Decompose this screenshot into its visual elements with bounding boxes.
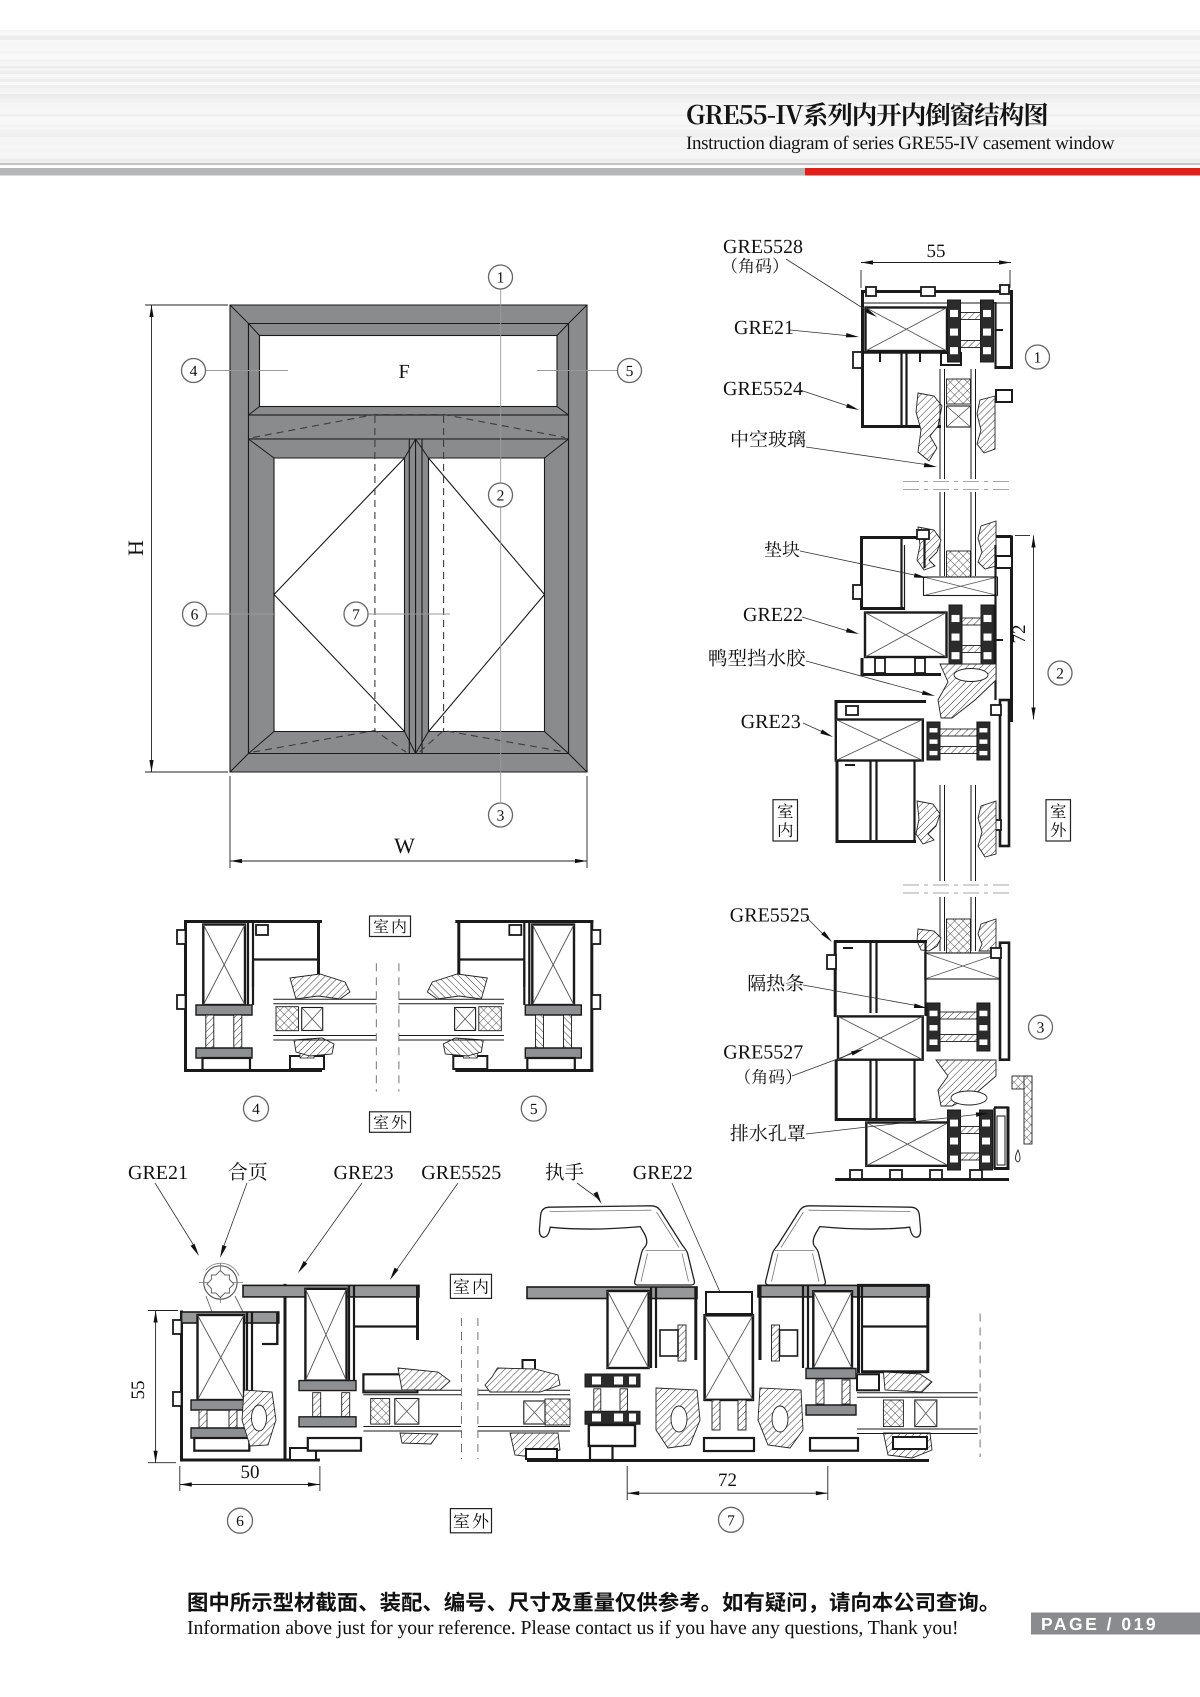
svg-text:F: F: [398, 361, 409, 383]
svg-text:6: 6: [236, 1513, 244, 1530]
svg-text:GRE5527: GRE5527: [723, 1042, 803, 1064]
svg-text:5: 5: [530, 1101, 538, 1118]
svg-text:1: 1: [1034, 350, 1042, 367]
svg-text:7: 7: [352, 607, 360, 624]
svg-text:55: 55: [927, 241, 946, 262]
svg-text:72: 72: [1009, 625, 1030, 644]
svg-text:2: 2: [1056, 666, 1064, 683]
svg-text:1: 1: [497, 270, 505, 287]
svg-text:GRE23: GRE23: [741, 711, 801, 733]
svg-text:4: 4: [252, 1101, 260, 1118]
svg-text:Instruction diagram of series: Instruction diagram of series GRE55-IV c…: [686, 133, 1115, 154]
svg-text:2: 2: [497, 488, 505, 505]
svg-text:55: 55: [128, 1381, 149, 1400]
svg-text:W: W: [394, 833, 415, 858]
svg-text:72: 72: [718, 1470, 737, 1491]
svg-text:50: 50: [241, 1462, 260, 1483]
svg-text:Information above just for you: Information above just for your referenc…: [187, 1617, 959, 1639]
svg-text:H: H: [123, 540, 148, 556]
svg-text:3: 3: [1037, 1020, 1045, 1037]
svg-text:GRE22: GRE22: [633, 1162, 693, 1184]
svg-text:5: 5: [626, 363, 634, 380]
svg-text:PAGE / 019: PAGE / 019: [1041, 1614, 1158, 1634]
svg-text:GRE23: GRE23: [334, 1162, 394, 1184]
svg-text:GRE5525: GRE5525: [421, 1162, 501, 1184]
svg-text:GRE21: GRE21: [128, 1162, 188, 1184]
svg-text:7: 7: [727, 1512, 735, 1529]
svg-text:GRE5528: GRE5528: [723, 236, 803, 258]
svg-text:4: 4: [190, 363, 198, 380]
svg-text:GRE5525: GRE5525: [730, 905, 810, 927]
svg-text:GRE22: GRE22: [743, 604, 803, 626]
svg-text:6: 6: [191, 607, 199, 624]
svg-text:3: 3: [497, 808, 505, 825]
svg-text:GRE5524: GRE5524: [723, 378, 803, 400]
svg-text:GRE21: GRE21: [734, 317, 794, 339]
